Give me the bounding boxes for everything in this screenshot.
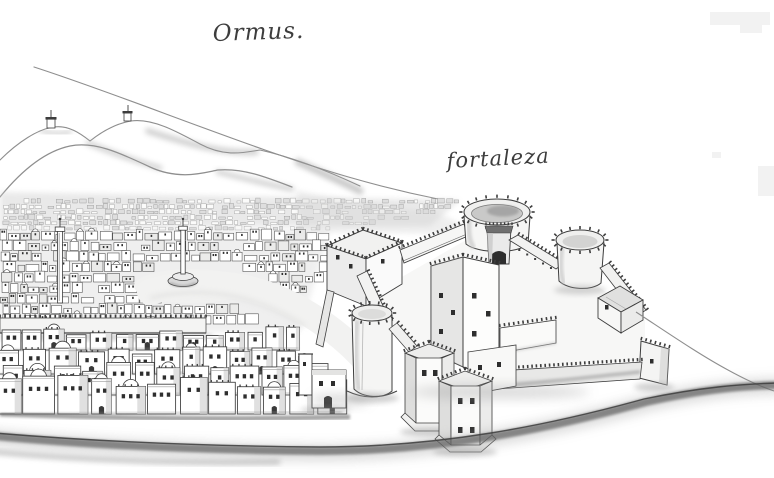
gate-tower <box>485 222 513 264</box>
scene-svg: Ormus. fortaleza <box>0 0 774 478</box>
city-label: Ormus. <box>212 18 304 47</box>
foreground-town <box>0 324 350 418</box>
engraving-figure: Ormus. fortaleza <box>0 0 774 478</box>
